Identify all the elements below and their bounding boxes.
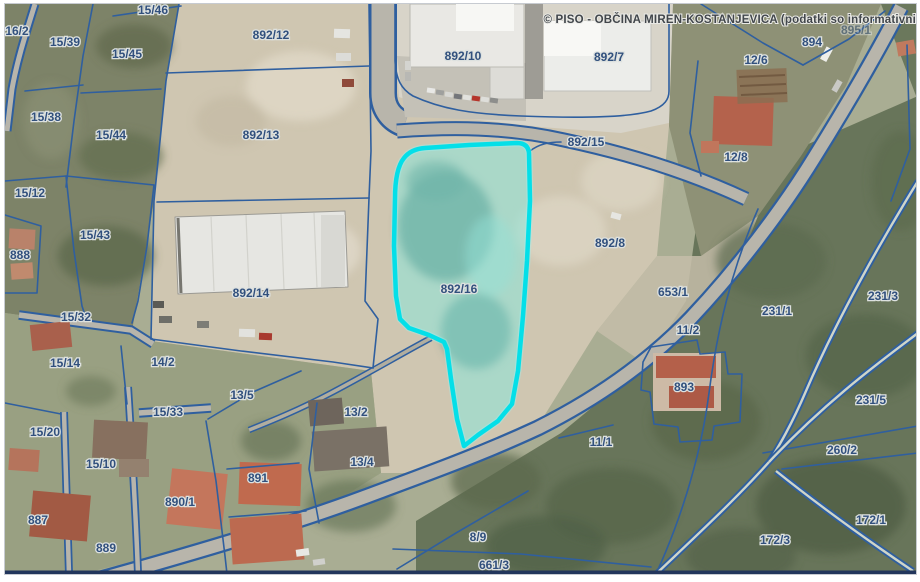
map-border-bottom xyxy=(5,571,917,575)
parcel-label-11-2: 11/2 xyxy=(677,323,700,337)
parcel-label-891: 891 xyxy=(248,471,268,485)
parcel-label-888: 888 xyxy=(10,248,30,262)
building-gap-shadow xyxy=(525,4,543,99)
building-892-10-roof xyxy=(456,4,514,31)
parcel-label-15-12: 15/12 xyxy=(15,186,45,200)
parcel-label-892-12: 892/12 xyxy=(253,28,290,42)
parcel-label-892-8: 892/8 xyxy=(595,236,625,250)
house xyxy=(119,459,149,477)
parcel-label-15-46: 15/46 xyxy=(138,4,168,17)
parcel-label-892-13: 892/13 xyxy=(243,128,280,142)
parcel-label-260-2: 260/2 xyxy=(827,443,857,457)
parcel-label-653-1: 653/1 xyxy=(658,285,688,299)
parcel-label-15-32: 15/32 xyxy=(61,310,91,324)
house xyxy=(8,228,35,249)
parcel-label-172-3: 172/3 xyxy=(760,533,790,547)
parcel-label-15-14: 15/14 xyxy=(50,356,80,370)
garden-rows xyxy=(736,68,787,104)
parcel-label-12-6: 12/6 xyxy=(744,53,768,67)
parcel-label-15-45: 15/45 xyxy=(112,47,142,61)
parcel-label-892-14: 892/14 xyxy=(233,286,270,300)
parcel-label-893: 893 xyxy=(674,380,694,394)
parcel-label-892-16: 892/16 xyxy=(441,282,478,296)
building-892-10-wing xyxy=(490,67,524,99)
parcel-label-889: 889 xyxy=(96,541,116,555)
parcel-label-231-1: 231/1 xyxy=(762,304,792,318)
parcel-label-231-5: 231/5 xyxy=(856,393,886,407)
house xyxy=(229,514,304,565)
warehouse-annex xyxy=(321,215,345,287)
house xyxy=(92,420,148,461)
parcel-label-887: 887 xyxy=(28,513,48,527)
cadastral-map[interactable]: 16/215/3915/4515/4615/3815/4415/1215/438… xyxy=(5,4,917,575)
parcel-label-661-3: 661/3 xyxy=(479,558,509,572)
parcel-label-15-10: 15/10 xyxy=(86,457,116,471)
parcel-label-14-2: 14/2 xyxy=(151,355,175,369)
parcel-label-892-15: 892/15 xyxy=(568,135,605,149)
screenshot-root: { "map": { "attribution": "© PISO - OBČI… xyxy=(0,0,920,582)
house xyxy=(8,448,39,472)
parcel-label-16-2: 16/2 xyxy=(5,24,29,38)
parcel-label-13-2: 13/2 xyxy=(344,405,368,419)
parcel-label-15-38: 15/38 xyxy=(31,110,61,124)
parcel-label-894: 894 xyxy=(802,35,822,49)
parcel-label-15-20: 15/20 xyxy=(30,425,60,439)
building-892-7-roof xyxy=(544,21,601,56)
parcel-label-13-5: 13/5 xyxy=(230,388,254,402)
house xyxy=(10,262,33,279)
parcel-label-8-9: 8/9 xyxy=(470,530,487,544)
house xyxy=(701,141,719,153)
house-893-roof xyxy=(656,356,716,378)
parcel-label-892-10: 892/10 xyxy=(445,49,482,63)
parcel-label-15-39: 15/39 xyxy=(50,35,80,49)
parcel-label-12-8: 12/8 xyxy=(724,150,748,164)
parcel-label-13-4: 13/4 xyxy=(350,455,374,469)
parcel-label-890-1: 890/1 xyxy=(165,495,195,509)
parcel-label-11-1: 11/1 xyxy=(590,435,613,449)
attribution-text: © PISO - OBČINA MIREN-KOSTANJEVICA (poda… xyxy=(543,13,916,26)
parcel-label-892-7: 892/7 xyxy=(594,50,624,64)
map-viewport[interactable]: 16/215/3915/4515/4615/3815/4415/1215/438… xyxy=(4,3,917,575)
parcel-label-15-33: 15/33 xyxy=(153,405,183,419)
house xyxy=(30,321,72,351)
parcel-label-231-3: 231/3 xyxy=(868,289,898,303)
house xyxy=(308,398,344,427)
parcel-label-172-1: 172/1 xyxy=(856,513,886,527)
parcel-label-15-43: 15/43 xyxy=(80,228,110,242)
parcel-label-15-44: 15/44 xyxy=(96,128,126,142)
